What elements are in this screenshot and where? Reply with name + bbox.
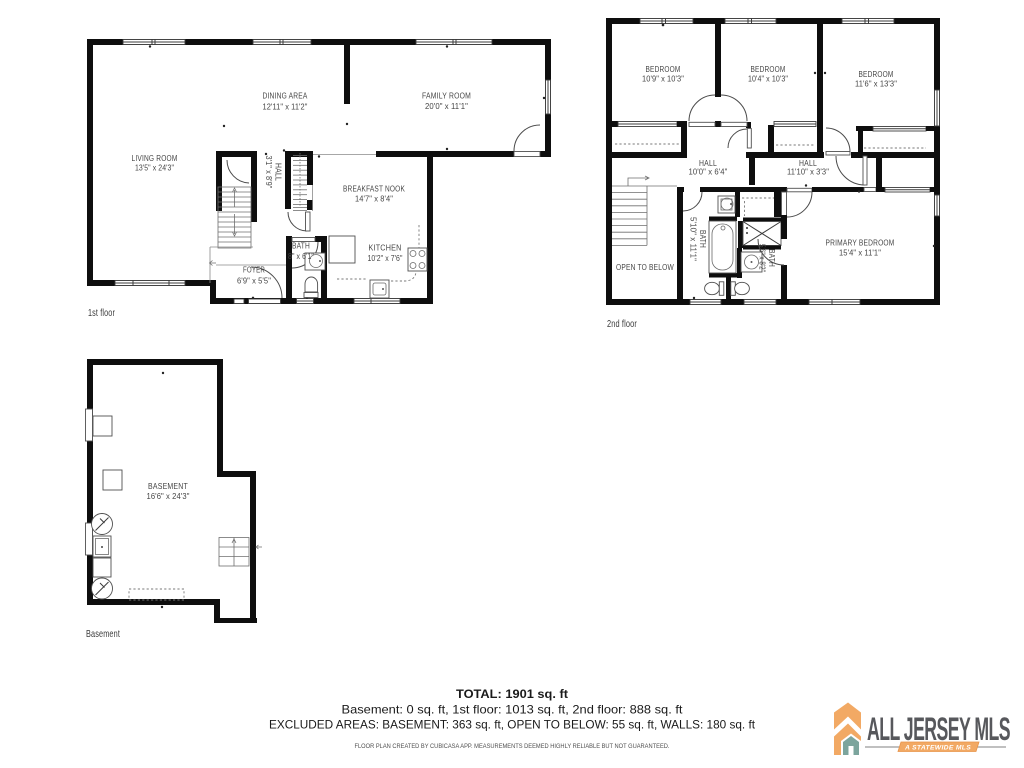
svg-text:HALL: HALL bbox=[274, 163, 284, 181]
svg-text:1st floor: 1st floor bbox=[88, 307, 115, 319]
svg-text:BEDROOM: BEDROOM bbox=[859, 69, 894, 79]
svg-text:FOYER: FOYER bbox=[243, 265, 265, 275]
svg-text:PRIMARY BEDROOM: PRIMARY BEDROOM bbox=[826, 238, 895, 248]
svg-text:11'10" x 3'3": 11'10" x 3'3" bbox=[787, 168, 829, 177]
svg-text:EXCLUDED AREAS: BASEMENT: 363: EXCLUDED AREAS: BASEMENT: 363 sq. ft, OP… bbox=[269, 718, 756, 732]
svg-text:OPEN TO BELOW: OPEN TO BELOW bbox=[616, 262, 674, 272]
svg-text:3'1" x 8'9": 3'1" x 8'9" bbox=[264, 156, 273, 189]
svg-text:HALL: HALL bbox=[799, 158, 817, 168]
svg-text:11'6" x 13'3": 11'6" x 13'3" bbox=[855, 80, 897, 89]
svg-text:10'4" x 10'3": 10'4" x 10'3" bbox=[748, 75, 788, 84]
svg-text:10'9" x 10'3": 10'9" x 10'3" bbox=[642, 75, 684, 84]
svg-text:BEDROOM: BEDROOM bbox=[751, 64, 786, 74]
svg-text:DINING AREA: DINING AREA bbox=[263, 91, 308, 101]
svg-text:5'10" x 11'1": 5'10" x 11'1" bbox=[689, 217, 698, 261]
svg-text:TOTAL: 1901 sq. ft: TOTAL: 1901 sq. ft bbox=[456, 687, 568, 701]
svg-text:10'0" x 6'4": 10'0" x 6'4" bbox=[689, 168, 728, 177]
svg-text:A STATEWIDE MLS: A STATEWIDE MLS bbox=[904, 744, 972, 751]
svg-text:LIVING ROOM: LIVING ROOM bbox=[132, 153, 178, 163]
svg-text:BREAKFAST NOOK: BREAKFAST NOOK bbox=[343, 184, 405, 194]
svg-text:16'6" x 24'3": 16'6" x 24'3" bbox=[147, 492, 190, 501]
svg-text:BATH: BATH bbox=[698, 230, 708, 248]
svg-text:BASEMENT: BASEMENT bbox=[148, 481, 188, 491]
svg-text:8" x 6'1": 8" x 6'1" bbox=[288, 252, 314, 261]
svg-text:BATH: BATH bbox=[767, 249, 777, 267]
svg-text:FAMILY ROOM: FAMILY ROOM bbox=[422, 91, 471, 101]
svg-text:20'0" x 11'1": 20'0" x 11'1" bbox=[425, 102, 468, 111]
svg-text:6'9" x 5'5": 6'9" x 5'5" bbox=[237, 277, 271, 286]
svg-text:13'5" x 24'3": 13'5" x 24'3" bbox=[135, 164, 174, 173]
svg-text:5'6" x 8'2": 5'6" x 8'2" bbox=[758, 244, 767, 272]
svg-text:15'4" x 11'1": 15'4" x 11'1" bbox=[839, 249, 881, 258]
svg-text:14'7" x 8'4": 14'7" x 8'4" bbox=[355, 195, 393, 204]
svg-text:Basement: Basement bbox=[86, 628, 120, 640]
svg-text:12'11" x 11'2": 12'11" x 11'2" bbox=[263, 103, 308, 112]
svg-text:BATH: BATH bbox=[292, 241, 310, 251]
svg-text:BEDROOM: BEDROOM bbox=[646, 64, 681, 74]
svg-text:10'2" x 7'6": 10'2" x 7'6" bbox=[368, 254, 403, 263]
svg-text:2nd floor: 2nd floor bbox=[607, 318, 637, 330]
svg-text:HALL: HALL bbox=[699, 158, 717, 168]
svg-text:KITCHEN: KITCHEN bbox=[369, 243, 402, 253]
svg-text:FLOOR PLAN CREATED BY CUBICASA: FLOOR PLAN CREATED BY CUBICASA APP. MEAS… bbox=[355, 743, 670, 750]
svg-text:Basement: 0 sq. ft, 1st floor:: Basement: 0 sq. ft, 1st floor: 1013 sq. … bbox=[342, 703, 684, 717]
